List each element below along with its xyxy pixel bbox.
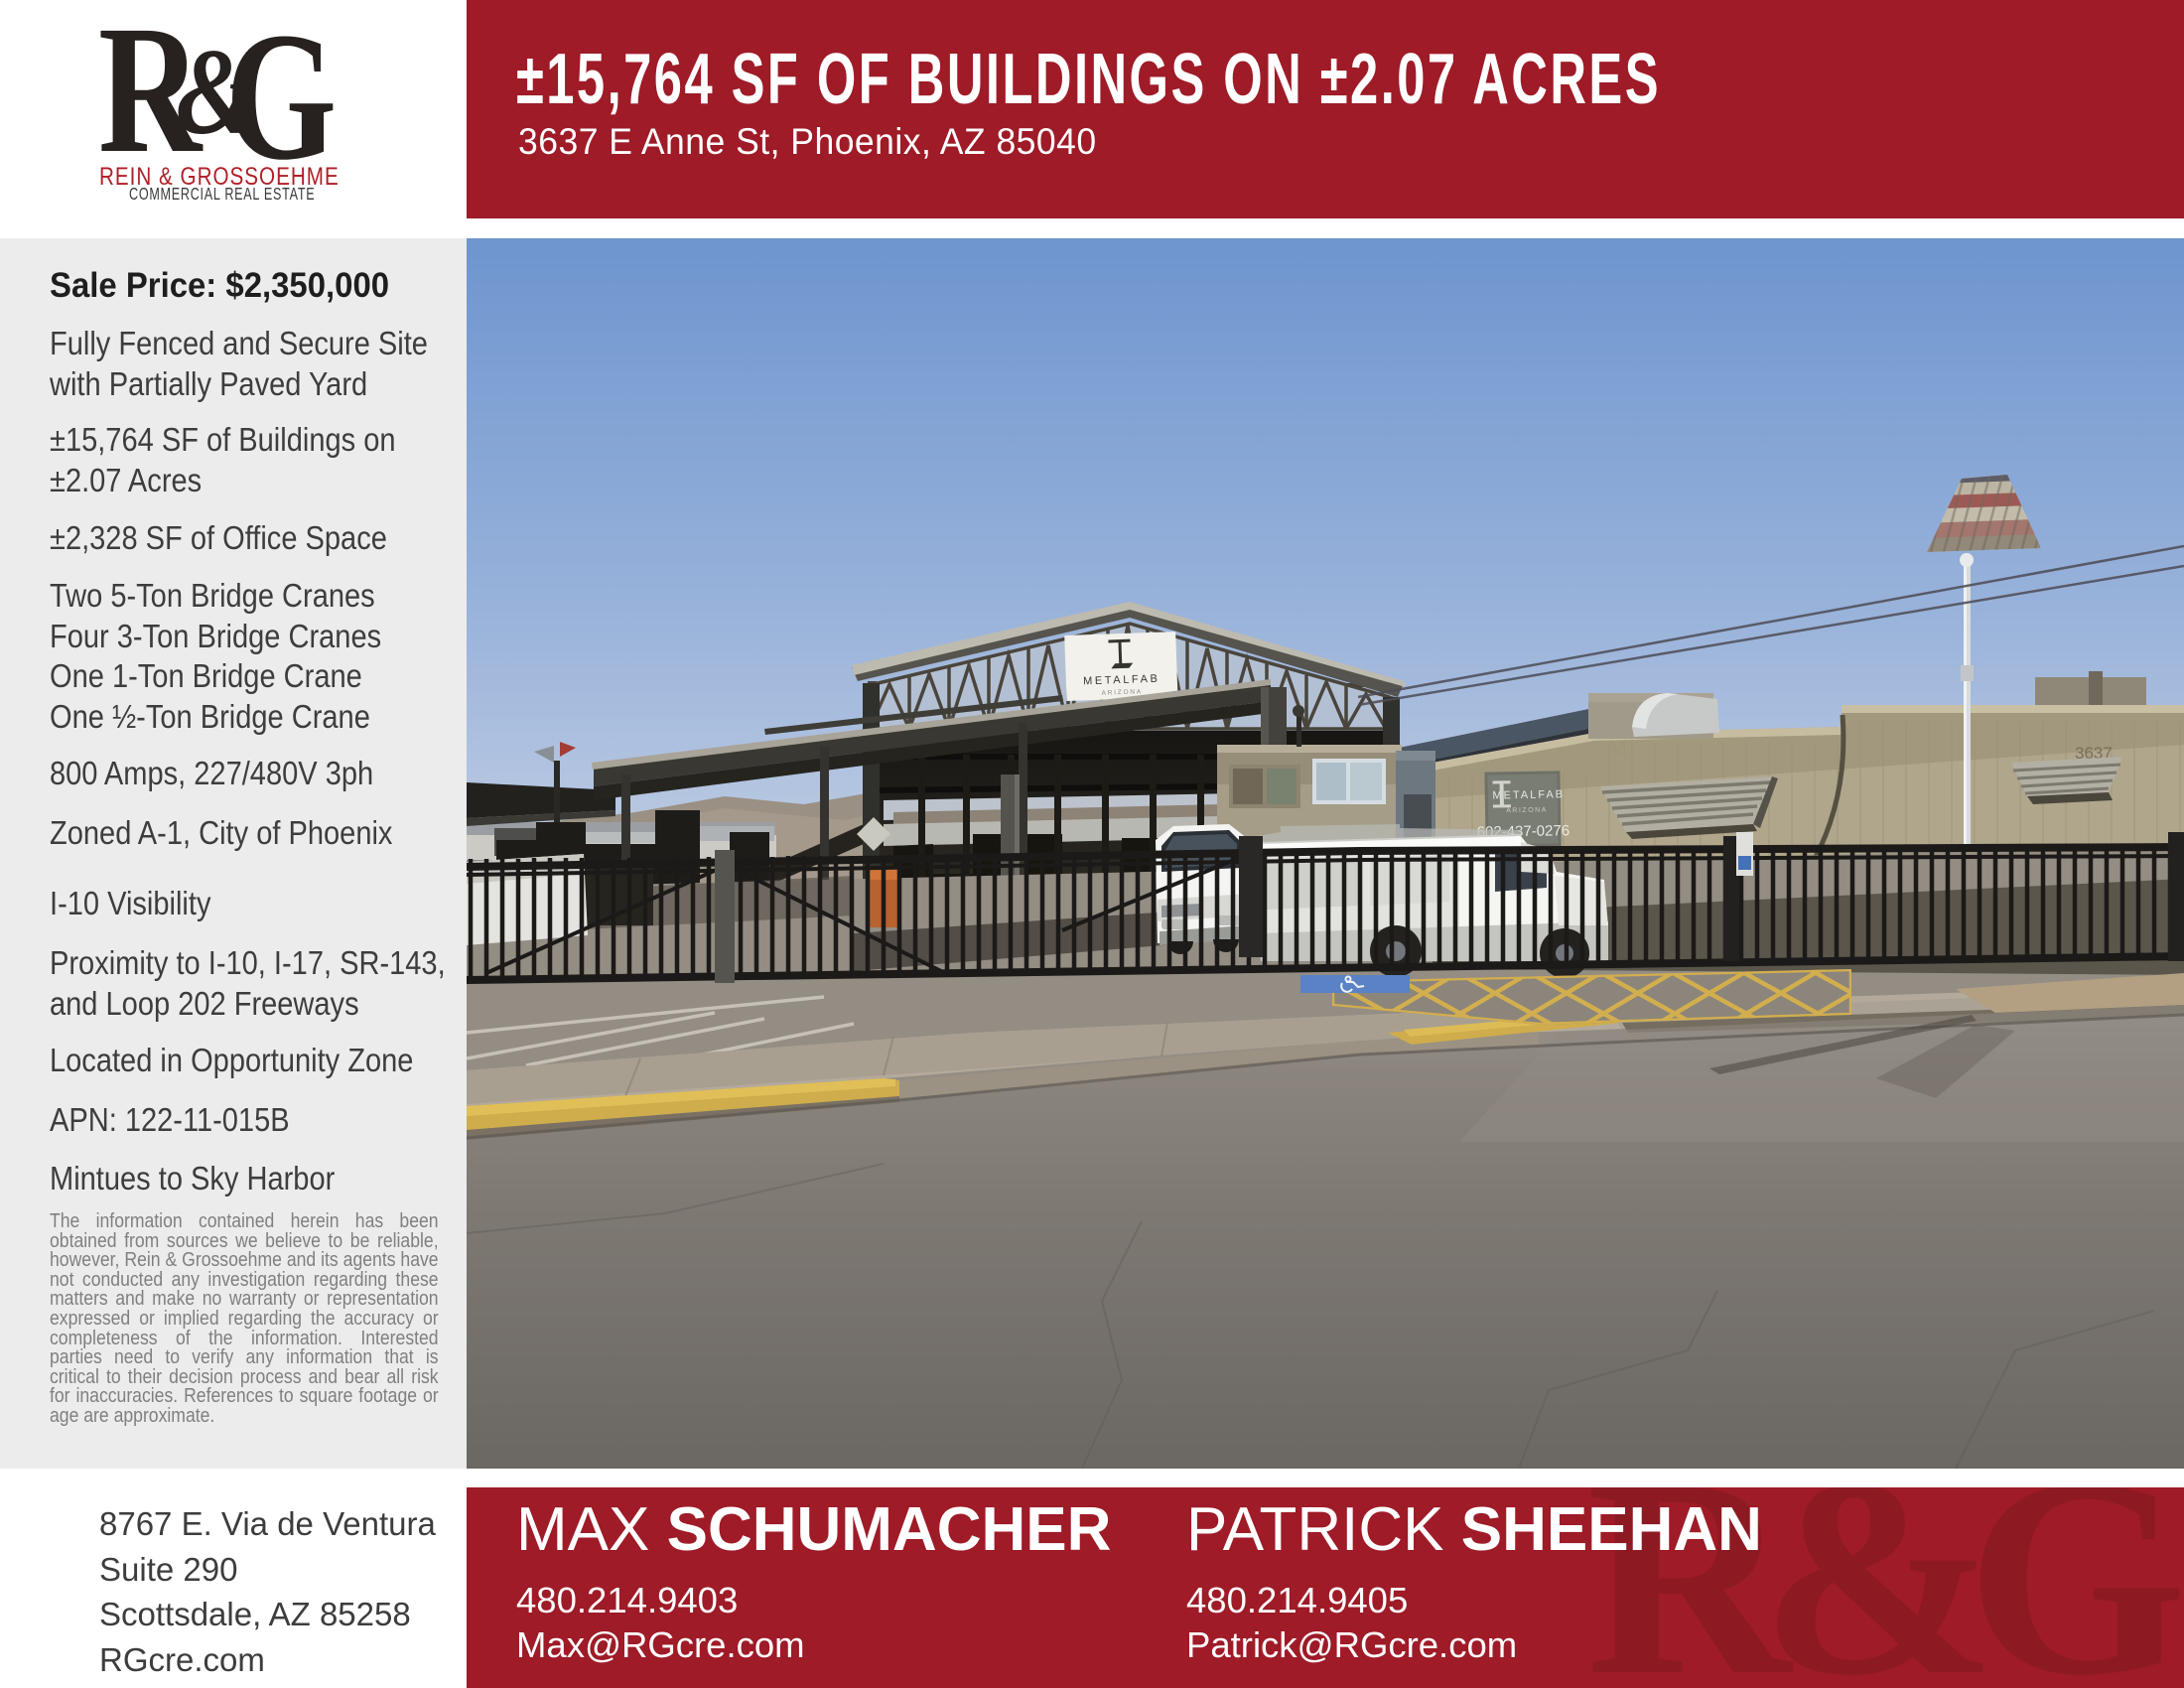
svg-text:M: M [1608, 735, 1628, 760]
svg-text:ARIZONA: ARIZONA [1506, 807, 1548, 815]
svg-text:ARIZONA: ARIZONA [1101, 688, 1143, 696]
